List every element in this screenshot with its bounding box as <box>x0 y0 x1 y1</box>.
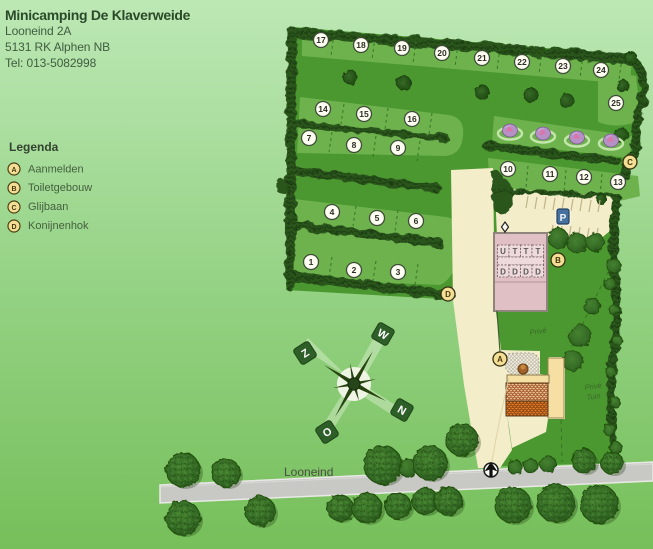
svg-text:11: 11 <box>546 169 555 179</box>
svg-text:B: B <box>555 256 561 265</box>
svg-text:15: 15 <box>359 109 369 119</box>
svg-text:T: T <box>524 247 529 256</box>
svg-text:4: 4 <box>330 207 335 217</box>
svg-text:Toiletgebouw: Toiletgebouw <box>28 182 92 194</box>
svg-text:12: 12 <box>579 172 589 182</box>
svg-text:D: D <box>512 268 518 277</box>
svg-text:Glijbaan: Glijbaan <box>28 201 68 213</box>
svg-text:Minicamping De Klaverweide: Minicamping De Klaverweide <box>5 7 191 23</box>
svg-text:Tel: 013-5082998: Tel: 013-5082998 <box>5 56 97 70</box>
svg-text:22: 22 <box>517 57 527 67</box>
svg-text:D: D <box>523 268 529 277</box>
svg-text:C: C <box>627 158 633 167</box>
svg-text:10: 10 <box>503 164 513 174</box>
svg-text:1: 1 <box>309 257 314 267</box>
svg-text:P: P <box>560 213 567 224</box>
svg-text:14: 14 <box>318 104 328 114</box>
svg-text:7: 7 <box>307 133 312 143</box>
svg-text:24: 24 <box>596 65 606 75</box>
svg-text:9: 9 <box>396 143 401 153</box>
svg-text:16: 16 <box>407 114 417 124</box>
svg-text:A: A <box>497 355 503 364</box>
svg-text:T: T <box>536 247 541 256</box>
svg-text:20: 20 <box>437 48 447 58</box>
svg-text:Looneind: Looneind <box>284 465 333 479</box>
svg-text:Konijnenhok: Konijnenhok <box>28 220 89 232</box>
svg-text:T: T <box>513 247 518 256</box>
svg-text:18: 18 <box>356 40 366 50</box>
svg-text:D: D <box>535 268 541 277</box>
svg-text:8: 8 <box>352 140 357 150</box>
svg-text:17: 17 <box>316 35 326 45</box>
svg-text:B: B <box>11 186 16 193</box>
svg-text:21: 21 <box>477 53 487 63</box>
svg-text:13: 13 <box>613 177 623 187</box>
svg-text:A: A <box>11 167 16 174</box>
svg-text:25: 25 <box>611 98 621 108</box>
svg-text:19: 19 <box>397 43 407 53</box>
svg-text:C: C <box>11 205 16 212</box>
svg-text:D: D <box>500 268 506 277</box>
svg-text:5131 RK Alphen NB: 5131 RK Alphen NB <box>5 40 110 54</box>
svg-text:2: 2 <box>352 265 357 275</box>
svg-text:3: 3 <box>396 267 401 277</box>
svg-text:D: D <box>11 224 16 231</box>
svg-text:23: 23 <box>558 61 568 71</box>
svg-text:5: 5 <box>375 213 380 223</box>
svg-text:Legenda: Legenda <box>9 140 59 154</box>
svg-text:6: 6 <box>414 216 419 226</box>
svg-text:U: U <box>500 247 506 256</box>
svg-text:Looneind 2A: Looneind 2A <box>5 24 71 38</box>
svg-text:Aanmelden: Aanmelden <box>28 164 84 176</box>
svg-text:D: D <box>445 290 451 299</box>
